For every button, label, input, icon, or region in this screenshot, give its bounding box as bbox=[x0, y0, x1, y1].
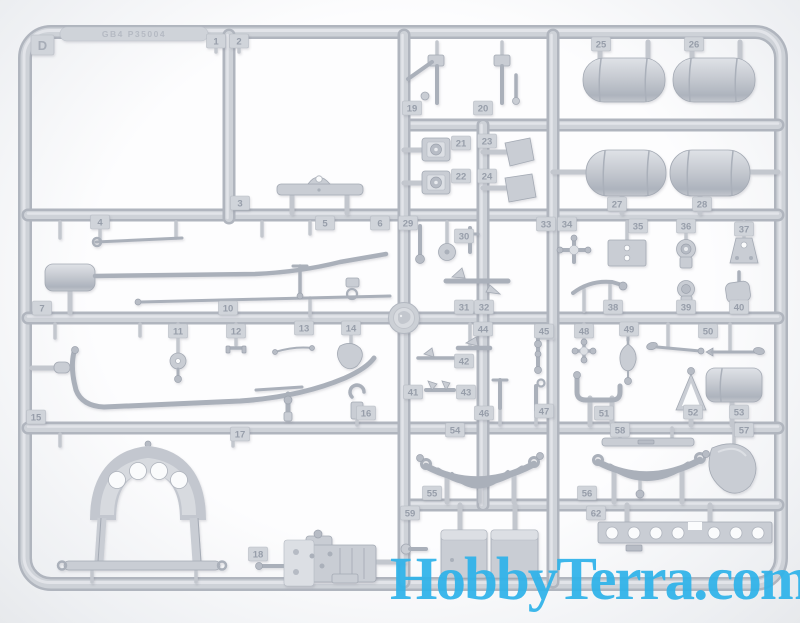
part-number-tag: 38 bbox=[604, 300, 623, 314]
part-number-tag: 42 bbox=[455, 354, 474, 368]
part-tie-rod-a bbox=[646, 324, 704, 354]
part-muffler-with-pipe bbox=[45, 254, 386, 313]
svg-text:1: 1 bbox=[213, 36, 219, 47]
part-number-tag: 1 bbox=[207, 34, 226, 48]
part-number-tag: 39 bbox=[677, 300, 696, 314]
svg-text:51: 51 bbox=[599, 408, 610, 419]
mold-stamp: GB4 P35004 bbox=[60, 27, 208, 41]
svg-text:12: 12 bbox=[231, 326, 242, 337]
svg-text:17: 17 bbox=[235, 429, 246, 440]
part-number-tag: 23 bbox=[478, 134, 497, 148]
part-number-tag: 40 bbox=[730, 300, 749, 314]
svg-text:36: 36 bbox=[681, 221, 692, 232]
svg-text:56: 56 bbox=[582, 488, 593, 499]
part-number-tag: 55 bbox=[423, 486, 442, 500]
part-number-tag: 62 bbox=[587, 506, 606, 520]
part-number-tag: 11 bbox=[169, 324, 188, 338]
part-number-tag: 37 bbox=[735, 222, 754, 236]
part-wire-13 bbox=[273, 346, 315, 355]
part-bent-tube bbox=[32, 347, 374, 408]
part-valve-34 bbox=[557, 235, 591, 262]
part-leaf-spring-right bbox=[594, 451, 710, 503]
svg-text:26: 26 bbox=[689, 39, 700, 50]
part-number-tag: 33 bbox=[537, 217, 556, 231]
part-number-tag: 15 bbox=[27, 410, 46, 424]
svg-text:3: 3 bbox=[237, 198, 242, 209]
svg-text:10: 10 bbox=[223, 303, 234, 314]
svg-text:35: 35 bbox=[633, 221, 644, 232]
part-number-tag: 45 bbox=[535, 324, 554, 338]
part-number-tag: 43 bbox=[457, 385, 476, 399]
part-lever-20 bbox=[494, 42, 520, 105]
sprue-illustration: GB4 P35004 D 123456710111213141516171819… bbox=[0, 0, 800, 623]
part-perforated-beam bbox=[598, 505, 772, 551]
part-number-tag: 27 bbox=[608, 197, 627, 211]
svg-text:42: 42 bbox=[459, 356, 470, 367]
svg-text:55: 55 bbox=[427, 488, 438, 499]
part-number-tag: 21 bbox=[452, 136, 471, 150]
svg-text:31: 31 bbox=[459, 302, 470, 313]
part-disc bbox=[439, 222, 456, 261]
svg-text:30: 30 bbox=[459, 231, 470, 242]
svg-text:5: 5 bbox=[322, 218, 328, 229]
manufacturer-logo-medallion bbox=[389, 303, 420, 334]
svg-text:43: 43 bbox=[461, 387, 472, 398]
svg-text:49: 49 bbox=[624, 324, 635, 335]
part-number-tag: 44 bbox=[474, 322, 493, 336]
sprue-letter-tag: D bbox=[31, 35, 54, 55]
part-number-tag: 47 bbox=[535, 404, 554, 418]
part-plate-22 bbox=[404, 171, 450, 194]
svg-text:50: 50 bbox=[703, 326, 714, 337]
part-winged-rod-42 bbox=[418, 348, 460, 358]
part-number-tag: 52 bbox=[684, 405, 703, 419]
svg-text:25: 25 bbox=[596, 39, 607, 50]
svg-text:54: 54 bbox=[450, 425, 461, 436]
part-number-tag: 34 bbox=[558, 217, 577, 231]
svg-text:39: 39 bbox=[681, 302, 692, 313]
part-number-tag: 12 bbox=[227, 324, 246, 338]
svg-text:58: 58 bbox=[615, 425, 626, 436]
svg-text:19: 19 bbox=[407, 103, 418, 114]
part-number-tag: 10 bbox=[219, 301, 238, 315]
part-number-tag: 57 bbox=[735, 423, 754, 437]
watermark-text: HobbyTerra.com bbox=[390, 549, 800, 610]
part-number-tag: 48 bbox=[575, 324, 594, 338]
part-number-tag: 41 bbox=[404, 385, 423, 399]
svg-text:59: 59 bbox=[405, 508, 416, 519]
svg-text:33: 33 bbox=[541, 219, 552, 230]
part-number-tag: 4 bbox=[91, 215, 110, 229]
part-number-tag: 53 bbox=[730, 405, 749, 419]
svg-text:13: 13 bbox=[299, 323, 310, 334]
part-number-tag: 31 bbox=[455, 300, 474, 314]
svg-text:41: 41 bbox=[408, 387, 419, 398]
part-bracket-bar-3 bbox=[277, 176, 363, 213]
part-number-tag: 36 bbox=[677, 219, 696, 233]
part-number-tag: 25 bbox=[592, 37, 611, 51]
svg-text:45: 45 bbox=[539, 326, 550, 337]
svg-text:37: 37 bbox=[739, 224, 750, 235]
part-number-tag: 22 bbox=[452, 169, 471, 183]
svg-text:14: 14 bbox=[346, 323, 357, 334]
part-number-tag: 2 bbox=[230, 34, 249, 48]
part-lever-19 bbox=[408, 42, 444, 103]
part-number-tag: 35 bbox=[629, 219, 648, 233]
svg-text:34: 34 bbox=[562, 219, 573, 230]
part-number-tag: 50 bbox=[699, 324, 718, 338]
part-number-tag: 5 bbox=[316, 216, 335, 230]
svg-text:38: 38 bbox=[608, 302, 619, 313]
svg-text:16: 16 bbox=[361, 408, 372, 419]
part-pin-with-ball bbox=[416, 226, 425, 264]
part-plate-21 bbox=[404, 138, 450, 161]
svg-text:6: 6 bbox=[377, 218, 382, 229]
svg-text:57: 57 bbox=[739, 425, 750, 436]
part-number-tag: 28 bbox=[693, 197, 712, 211]
svg-text:18: 18 bbox=[253, 549, 264, 560]
part-number-tag: 7 bbox=[33, 301, 52, 315]
svg-text:7: 7 bbox=[39, 303, 44, 314]
part-number-tag: 6 bbox=[371, 216, 390, 230]
sprue-photo-stage: GB4 P35004 D 123456710111213141516171819… bbox=[0, 0, 800, 623]
svg-text:22: 22 bbox=[456, 171, 467, 182]
part-number-tag: 32 bbox=[475, 300, 494, 314]
part-number-tag: 54 bbox=[446, 423, 465, 437]
part-number-tag: 16 bbox=[357, 406, 376, 420]
svg-text:21: 21 bbox=[456, 138, 467, 149]
mold-stamp-text: GB4 P35004 bbox=[102, 29, 166, 39]
part-number-tag: 46 bbox=[475, 406, 494, 420]
part-number-tag: 58 bbox=[611, 423, 630, 437]
part-number-tag: 30 bbox=[455, 229, 474, 243]
svg-text:11: 11 bbox=[173, 326, 184, 337]
svg-text:2: 2 bbox=[236, 36, 241, 47]
svg-text:29: 29 bbox=[403, 218, 414, 229]
part-number-tag: 20 bbox=[474, 101, 493, 115]
part-number-tag: 14 bbox=[342, 321, 361, 335]
part-air-tank-28 bbox=[670, 150, 778, 213]
svg-text:44: 44 bbox=[478, 324, 489, 335]
svg-text:28: 28 bbox=[697, 199, 708, 210]
part-number-tag: 29 bbox=[399, 216, 418, 230]
part-horns-43 bbox=[426, 381, 454, 390]
svg-text:20: 20 bbox=[478, 103, 489, 114]
svg-text:62: 62 bbox=[591, 508, 602, 519]
part-number-tag: 19 bbox=[403, 101, 422, 115]
part-number-tag: 13 bbox=[295, 321, 314, 335]
svg-text:46: 46 bbox=[479, 408, 490, 419]
part-number-tag: 18 bbox=[249, 547, 268, 561]
part-number-tag: 51 bbox=[595, 406, 614, 420]
part-arch-frame bbox=[98, 441, 201, 562]
svg-text:15: 15 bbox=[31, 412, 42, 423]
part-number-tag: 24 bbox=[478, 169, 497, 183]
svg-text:40: 40 bbox=[734, 302, 745, 313]
svg-text:53: 53 bbox=[734, 407, 745, 418]
svg-text:48: 48 bbox=[579, 326, 590, 337]
part-tee-46 bbox=[493, 380, 507, 425]
part-number-tag: 17 bbox=[231, 427, 250, 441]
svg-text:23: 23 bbox=[482, 136, 493, 147]
part-number-tag: 49 bbox=[620, 322, 639, 336]
part-number-tag: 59 bbox=[401, 506, 420, 520]
svg-text:32: 32 bbox=[479, 302, 490, 313]
part-fender-57 bbox=[709, 428, 756, 493]
sprue-letter: D bbox=[38, 38, 47, 53]
svg-text:4: 4 bbox=[97, 217, 103, 228]
svg-text:27: 27 bbox=[612, 199, 623, 210]
svg-text:47: 47 bbox=[539, 406, 550, 417]
part-number-tag: 56 bbox=[578, 486, 597, 500]
part-number-tag: 3 bbox=[231, 196, 250, 210]
part-number-tag: 26 bbox=[685, 37, 704, 51]
svg-text:52: 52 bbox=[688, 407, 699, 418]
svg-text:24: 24 bbox=[482, 171, 493, 182]
